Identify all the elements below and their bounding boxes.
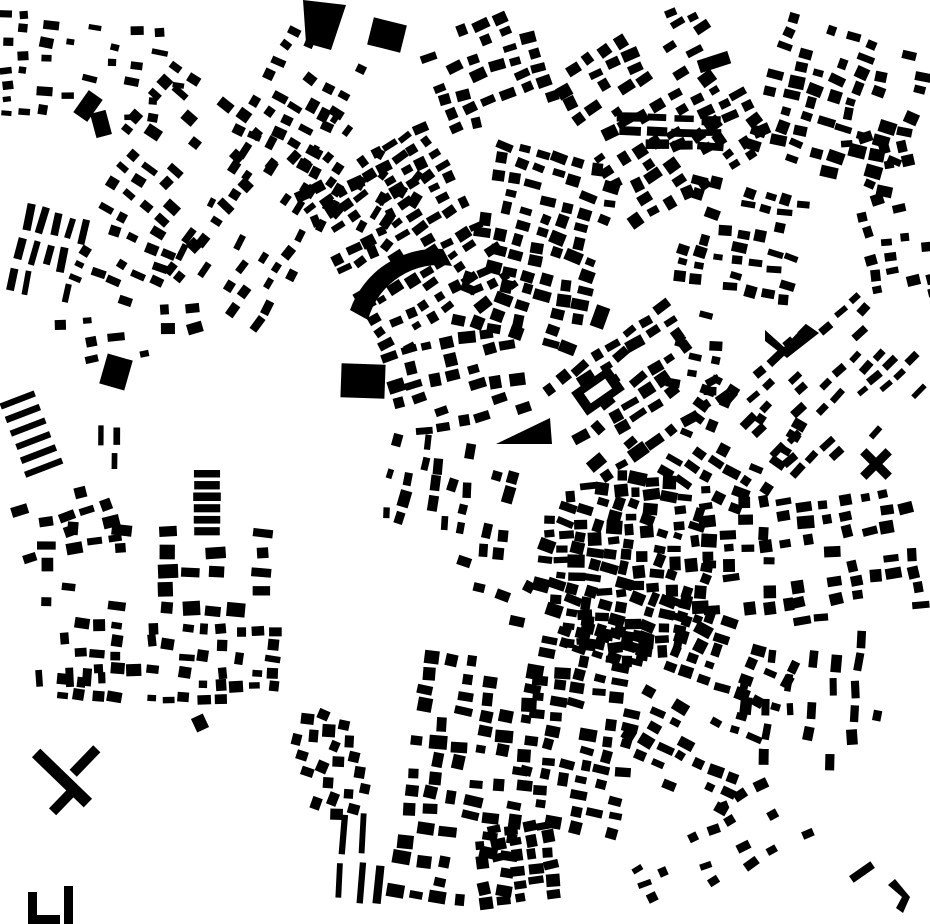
building <box>822 514 832 525</box>
building <box>194 481 220 489</box>
building <box>626 514 637 521</box>
building <box>359 783 371 795</box>
building <box>699 129 721 136</box>
building <box>632 565 645 579</box>
building <box>113 427 120 444</box>
building <box>618 470 628 480</box>
building <box>704 387 717 396</box>
building <box>884 252 897 262</box>
building <box>61 583 75 592</box>
building <box>702 116 721 125</box>
building <box>197 695 211 705</box>
building <box>160 545 175 560</box>
building <box>217 640 228 652</box>
building <box>852 590 863 600</box>
building <box>778 294 789 305</box>
building <box>147 113 158 123</box>
building <box>495 151 508 164</box>
building <box>416 427 433 435</box>
building <box>475 855 489 869</box>
building <box>542 847 553 857</box>
building <box>535 799 546 808</box>
building <box>323 777 334 788</box>
building <box>194 470 220 477</box>
building <box>565 491 575 503</box>
building <box>205 546 226 559</box>
building <box>567 554 584 567</box>
building <box>830 678 837 696</box>
building <box>766 266 781 274</box>
building <box>433 458 444 475</box>
building <box>528 863 544 875</box>
building <box>67 521 79 535</box>
building <box>709 341 722 351</box>
building <box>619 126 641 136</box>
building <box>698 515 716 529</box>
building <box>803 534 814 546</box>
building <box>482 676 497 689</box>
building <box>308 729 318 742</box>
building <box>410 735 423 746</box>
building <box>178 666 192 679</box>
building <box>655 635 669 643</box>
building <box>131 26 144 35</box>
building <box>659 623 669 632</box>
building <box>18 66 26 74</box>
building <box>529 709 545 719</box>
building <box>160 304 169 315</box>
building <box>532 692 544 701</box>
building <box>761 699 769 716</box>
building <box>496 896 511 906</box>
building <box>492 169 506 181</box>
building <box>825 754 835 771</box>
building <box>884 160 895 169</box>
building <box>130 61 143 70</box>
building <box>860 493 870 502</box>
building <box>657 645 667 658</box>
building <box>204 606 221 618</box>
building <box>344 789 354 799</box>
building <box>546 889 560 900</box>
building <box>526 848 536 860</box>
building <box>66 38 75 45</box>
building <box>673 521 684 530</box>
building <box>690 535 700 547</box>
building <box>234 652 244 665</box>
building <box>108 59 116 66</box>
building <box>763 585 776 598</box>
building <box>609 691 624 704</box>
building <box>557 772 569 787</box>
building <box>3 37 13 46</box>
building <box>677 494 692 502</box>
building <box>569 681 585 694</box>
building <box>768 650 777 664</box>
building <box>588 532 602 546</box>
building <box>155 28 165 37</box>
building <box>3 96 12 102</box>
building <box>850 705 859 722</box>
building <box>851 681 860 699</box>
building <box>759 749 769 765</box>
building <box>674 115 693 122</box>
building <box>684 558 698 573</box>
building <box>269 680 280 691</box>
building <box>572 313 584 325</box>
building <box>667 546 680 552</box>
building <box>797 515 815 529</box>
building <box>776 510 790 522</box>
building <box>642 488 660 501</box>
building <box>496 743 510 757</box>
building <box>94 664 104 673</box>
building <box>758 527 769 541</box>
building <box>445 790 457 805</box>
building <box>200 623 209 634</box>
building <box>830 654 842 672</box>
building <box>787 703 794 715</box>
building <box>870 269 881 281</box>
building <box>701 533 717 547</box>
building <box>111 524 132 537</box>
building <box>159 526 177 537</box>
building <box>444 653 458 667</box>
building <box>475 841 484 850</box>
building <box>544 516 555 524</box>
building <box>251 626 264 636</box>
building <box>671 129 698 138</box>
building <box>510 866 525 877</box>
building <box>185 303 200 314</box>
building <box>107 332 125 342</box>
building <box>475 745 485 754</box>
building <box>703 560 716 568</box>
building <box>493 778 505 791</box>
building <box>759 539 773 553</box>
building <box>455 894 465 906</box>
building <box>570 806 583 818</box>
building <box>646 139 669 149</box>
building <box>405 784 419 797</box>
building <box>629 581 644 590</box>
building <box>791 580 805 595</box>
building <box>19 11 28 19</box>
building <box>763 601 776 615</box>
building <box>701 486 710 494</box>
building <box>603 548 617 559</box>
building <box>841 140 853 147</box>
building <box>57 692 68 700</box>
building <box>533 785 547 796</box>
building <box>743 601 756 615</box>
building <box>0 10 12 17</box>
building <box>74 617 90 630</box>
building <box>669 556 681 570</box>
building <box>738 514 753 524</box>
building <box>666 585 678 597</box>
building <box>458 414 470 427</box>
building <box>493 227 507 242</box>
building <box>450 742 467 754</box>
building <box>718 225 732 236</box>
building <box>216 679 227 691</box>
building <box>179 654 195 662</box>
building <box>645 477 659 487</box>
building <box>92 690 105 701</box>
building <box>608 536 620 545</box>
building <box>332 756 344 767</box>
building <box>182 624 194 633</box>
building <box>161 602 174 614</box>
building <box>489 375 503 390</box>
building <box>559 530 574 539</box>
building <box>604 200 616 208</box>
building <box>469 780 483 789</box>
building <box>163 697 175 704</box>
building <box>249 682 260 689</box>
building <box>605 719 617 732</box>
building <box>330 808 343 819</box>
building <box>515 893 526 903</box>
building <box>158 582 174 597</box>
building <box>403 803 416 816</box>
building <box>797 201 810 209</box>
building <box>574 531 586 542</box>
building <box>481 812 499 825</box>
building <box>1 110 12 116</box>
building <box>807 702 817 719</box>
building <box>720 530 737 540</box>
building <box>115 543 126 553</box>
building <box>436 717 447 732</box>
building <box>160 638 174 651</box>
building <box>648 114 667 122</box>
building <box>574 520 587 530</box>
building <box>881 238 892 246</box>
map-canvas <box>0 0 930 924</box>
building <box>199 680 207 688</box>
building <box>723 559 735 572</box>
building <box>85 336 97 348</box>
building <box>907 548 917 562</box>
figure-ground-map <box>0 0 930 924</box>
building <box>554 667 571 679</box>
building <box>83 317 92 324</box>
building <box>614 483 629 497</box>
building <box>517 749 531 763</box>
building <box>482 692 494 706</box>
building <box>824 546 841 558</box>
building <box>226 602 246 618</box>
building <box>75 648 87 657</box>
building <box>112 453 118 469</box>
building <box>429 771 442 785</box>
building <box>18 108 30 115</box>
building <box>516 779 532 791</box>
building <box>416 821 434 835</box>
building <box>110 662 125 674</box>
building <box>269 627 282 636</box>
building <box>251 567 272 577</box>
building <box>880 504 894 515</box>
building <box>724 544 734 552</box>
building <box>921 242 930 252</box>
building <box>60 632 69 644</box>
building <box>580 596 591 611</box>
building <box>900 233 909 242</box>
building <box>416 696 433 712</box>
building <box>504 826 518 836</box>
building <box>462 674 473 686</box>
building <box>423 803 438 814</box>
building <box>37 104 48 115</box>
building <box>72 688 85 701</box>
building <box>438 855 450 868</box>
building <box>818 500 828 509</box>
building <box>441 516 449 530</box>
building <box>495 730 514 744</box>
building <box>257 547 269 558</box>
building <box>556 572 566 579</box>
building <box>595 612 609 621</box>
building <box>267 639 279 651</box>
building <box>524 735 538 746</box>
building <box>55 320 66 330</box>
building <box>511 848 523 861</box>
building <box>18 23 28 32</box>
building <box>215 623 227 634</box>
building <box>606 520 623 535</box>
building <box>546 874 561 888</box>
building <box>158 564 179 579</box>
building <box>602 736 613 748</box>
building <box>82 668 92 686</box>
building <box>147 634 156 647</box>
building <box>2 80 14 90</box>
building <box>196 649 209 662</box>
building <box>182 601 200 616</box>
building <box>93 619 105 631</box>
building <box>467 655 477 667</box>
building <box>753 229 767 243</box>
building <box>161 323 175 334</box>
building <box>146 664 159 674</box>
building <box>689 273 702 285</box>
building <box>61 92 73 98</box>
building <box>354 766 366 779</box>
building <box>89 649 105 659</box>
building <box>479 544 489 558</box>
building <box>732 255 743 265</box>
building <box>758 495 769 508</box>
building <box>550 594 562 604</box>
building <box>568 572 585 581</box>
building <box>397 834 414 849</box>
building <box>42 558 54 572</box>
building <box>36 86 53 96</box>
building <box>913 581 924 593</box>
building <box>542 758 555 766</box>
building <box>430 475 441 492</box>
building <box>857 631 867 649</box>
building <box>408 768 419 778</box>
building <box>497 530 508 543</box>
building <box>636 551 647 562</box>
building <box>193 492 221 501</box>
building <box>532 675 548 686</box>
building <box>808 650 818 668</box>
building <box>416 855 432 869</box>
building <box>814 613 829 621</box>
building <box>215 694 227 704</box>
building <box>556 545 567 552</box>
building <box>839 494 853 507</box>
building <box>623 539 634 550</box>
building <box>739 697 752 715</box>
building <box>0 67 12 75</box>
building <box>41 597 51 606</box>
building <box>613 625 626 638</box>
building <box>615 601 628 613</box>
building <box>616 589 627 598</box>
building <box>631 487 639 497</box>
building <box>508 172 521 184</box>
building <box>194 504 220 512</box>
landmark-center-square <box>340 363 385 399</box>
building <box>218 667 227 679</box>
building <box>596 588 612 596</box>
building <box>617 112 643 121</box>
building <box>544 529 555 537</box>
building <box>479 329 493 340</box>
building <box>694 585 707 599</box>
building <box>672 141 692 150</box>
building <box>530 242 544 255</box>
building <box>424 650 440 665</box>
building <box>674 505 686 514</box>
building <box>229 681 244 693</box>
building <box>640 525 654 538</box>
building <box>550 712 562 721</box>
building <box>646 583 659 593</box>
building <box>237 627 246 636</box>
building <box>194 516 220 524</box>
building <box>65 667 74 687</box>
building <box>479 896 494 910</box>
building <box>41 55 51 62</box>
building <box>620 549 631 561</box>
building <box>177 692 189 702</box>
building <box>509 372 526 386</box>
building <box>344 735 354 747</box>
building <box>554 679 567 690</box>
building <box>673 270 686 282</box>
building <box>253 586 270 595</box>
building <box>98 425 103 445</box>
building <box>592 688 606 696</box>
building <box>713 254 723 261</box>
building <box>37 541 56 549</box>
building <box>110 652 120 661</box>
building <box>581 615 595 627</box>
building <box>126 664 142 677</box>
landmark-bl-L2 <box>64 886 73 924</box>
building <box>556 293 572 307</box>
building <box>869 569 882 582</box>
building <box>383 507 390 518</box>
building <box>879 520 895 535</box>
